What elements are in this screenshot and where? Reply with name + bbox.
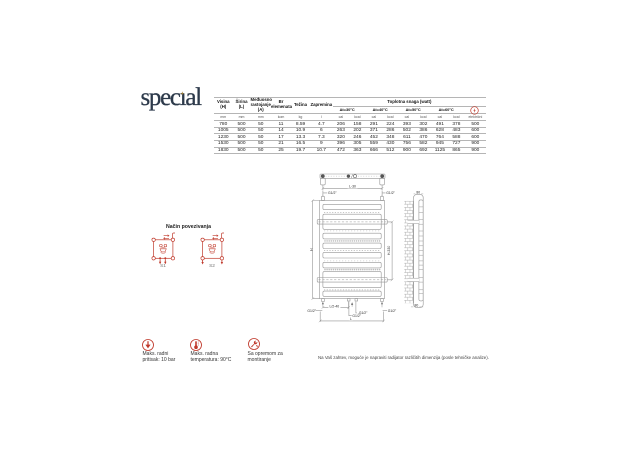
svg-text:L-30: L-30 [349, 185, 356, 189]
svg-text:H-330: H-330 [387, 246, 391, 255]
svg-text:G1/2": G1/2" [386, 191, 395, 195]
svg-text:G1/2": G1/2" [307, 309, 316, 313]
svg-text:G1/2": G1/2" [328, 191, 337, 195]
svg-text:G1/2": G1/2" [388, 309, 397, 313]
svg-text:L: L [350, 317, 352, 321]
svg-text:80: 80 [416, 190, 420, 194]
svg-text:L/2-40: L/2-40 [329, 305, 339, 309]
svg-text:80: 80 [415, 303, 419, 307]
svg-text:H: H [310, 248, 314, 251]
svg-text:G1/2": G1/2" [352, 314, 361, 318]
